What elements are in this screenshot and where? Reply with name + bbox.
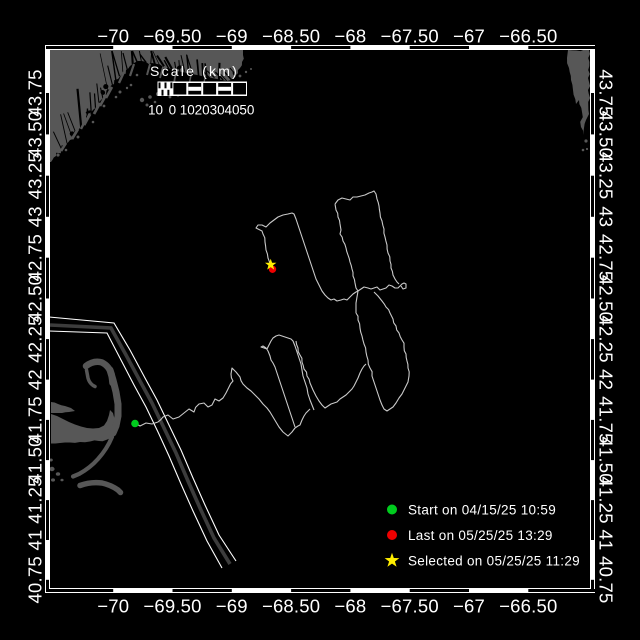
svg-text:Start on 04/15/25 10:59: Start on 04/15/25 10:59 <box>408 503 556 518</box>
svg-text:43.50: 43.50 <box>25 111 46 158</box>
svg-text:10: 10 <box>180 103 195 118</box>
svg-text:−67.50: −67.50 <box>381 25 439 46</box>
svg-text:42.25: 42.25 <box>25 315 46 362</box>
svg-text:−69: −69 <box>216 595 248 616</box>
svg-text:−69.50: −69.50 <box>143 595 201 616</box>
svg-text:40.75: 40.75 <box>25 556 46 603</box>
svg-text:42.75: 42.75 <box>25 234 46 281</box>
svg-text:−70: −70 <box>97 25 129 46</box>
svg-text:−68: −68 <box>334 25 366 46</box>
svg-text:0: 0 <box>169 103 177 118</box>
svg-text:43.25: 43.25 <box>25 152 46 199</box>
svg-text:41.25: 41.25 <box>25 476 46 523</box>
svg-text:20: 20 <box>195 103 210 118</box>
svg-text:42.50: 42.50 <box>25 275 46 322</box>
svg-text:−67: −67 <box>453 25 485 46</box>
svg-text:10: 10 <box>148 103 163 118</box>
svg-text:Scale (km): Scale (km) <box>150 63 239 79</box>
svg-text:43.25: 43.25 <box>596 152 617 199</box>
svg-text:42.25: 42.25 <box>596 315 617 362</box>
svg-text:Last on 05/25/25 13:29: Last on 05/25/25 13:29 <box>408 528 553 543</box>
svg-text:−69: −69 <box>216 25 248 46</box>
svg-text:41.25: 41.25 <box>596 476 617 523</box>
svg-text:43.75: 43.75 <box>596 69 617 116</box>
svg-text:50: 50 <box>239 103 254 118</box>
svg-text:−70: −70 <box>97 595 129 616</box>
svg-text:42: 42 <box>25 369 46 390</box>
svg-text:−69.50: −69.50 <box>143 25 201 46</box>
svg-text:41: 41 <box>25 530 46 551</box>
svg-text:−66.50: −66.50 <box>499 25 557 46</box>
svg-text:40: 40 <box>224 103 239 118</box>
svg-text:−68.50: −68.50 <box>262 25 320 46</box>
svg-text:43.75: 43.75 <box>25 69 46 116</box>
svg-text:−67.50: −67.50 <box>381 595 439 616</box>
svg-text:30: 30 <box>210 103 225 118</box>
svg-text:43: 43 <box>25 206 46 227</box>
svg-text:41: 41 <box>596 530 617 551</box>
svg-text:40.75: 40.75 <box>596 556 617 603</box>
svg-text:43.50: 43.50 <box>596 111 617 158</box>
svg-text:−68: −68 <box>334 595 366 616</box>
svg-text:Selected on 05/25/25 11:29: Selected on 05/25/25 11:29 <box>408 554 580 569</box>
svg-text:−68.50: −68.50 <box>262 595 320 616</box>
svg-text:43: 43 <box>596 206 617 227</box>
svg-text:−66.50: −66.50 <box>499 595 557 616</box>
svg-text:42: 42 <box>596 369 617 390</box>
svg-text:−67: −67 <box>453 595 485 616</box>
